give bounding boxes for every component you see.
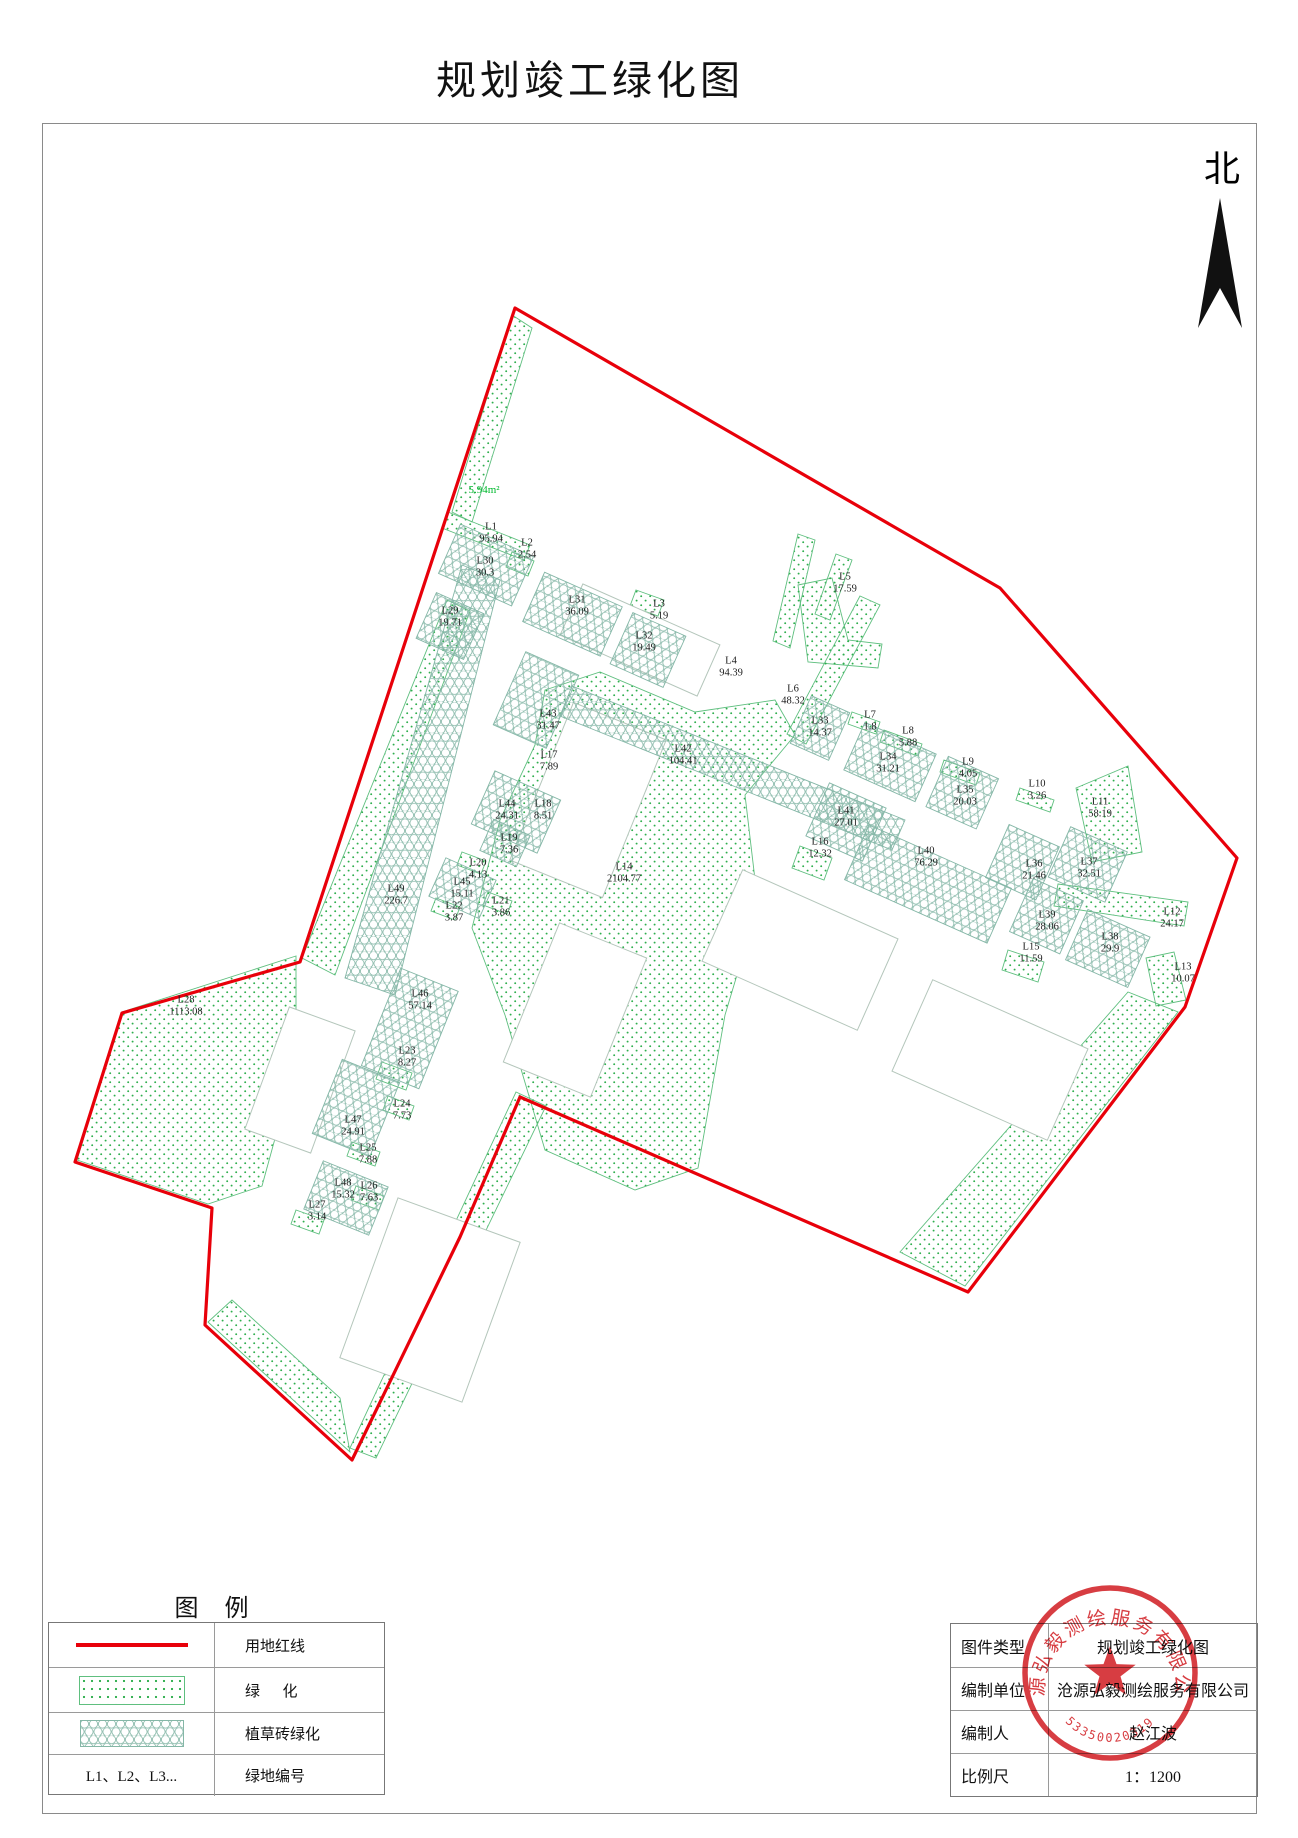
area-label-L17: L177.89 — [540, 749, 558, 773]
area-label-L7: L71.8 — [863, 709, 876, 733]
area-label-L46: L4657.14 — [408, 988, 432, 1012]
legend-redline-swatch — [49, 1623, 215, 1667]
area-label-L38: L3829.9 — [1101, 931, 1119, 955]
area-label-L2: L22.54 — [518, 537, 536, 561]
area-label-L11: L1158.19 — [1088, 796, 1112, 820]
area-label-L28: L281113.08 — [169, 994, 202, 1018]
area-label-L37: L3732.51 — [1077, 856, 1101, 880]
area-label-L33: L3314.37 — [808, 715, 832, 739]
legend-grassbrick-label: 植草砖绿化 — [215, 1712, 384, 1754]
area-label-L43: L4331.47 — [536, 708, 560, 732]
legend-grassbrick-swatch — [49, 1712, 215, 1754]
area-label-L8: L85.88 — [899, 725, 917, 749]
legend-codes-label: 绿地编号 — [215, 1754, 384, 1796]
area-label-L3: L35.19 — [650, 598, 668, 622]
area-label-L29: L2919.71 — [438, 605, 462, 629]
area-label-L21: L213.86 — [492, 895, 510, 919]
area-label-L12: L1224.17 — [1160, 906, 1184, 930]
sheet: 规划竣工绿化图 — [0, 0, 1298, 1838]
area-label-L49: L49226.7 — [384, 883, 408, 907]
area-label-L25: L257.88 — [359, 1142, 377, 1166]
area-label-L22: L223.87 — [445, 900, 463, 924]
north-label: 北 — [1196, 140, 1248, 192]
area-label-L31: L3136.09 — [565, 594, 589, 618]
area-label-L45: L4515.11 — [450, 876, 473, 900]
legend-title: 图 例 — [48, 1588, 385, 1623]
area-label-L30: L3030.3 — [476, 555, 494, 579]
legend-green-label: 绿 化 — [215, 1667, 384, 1712]
site-plan — [0, 0, 1298, 1838]
area-label-L47: L4724.91 — [341, 1114, 365, 1138]
area-label-L32: L3219.49 — [632, 630, 656, 654]
legend-codes-sample: L1、L2、L3... — [49, 1754, 215, 1796]
area-label-L35: L3520.03 — [953, 784, 977, 808]
area-label-L19: L197.36 — [500, 832, 518, 856]
svg-text:53350020319: 53350020319 — [1063, 1714, 1157, 1745]
area-label-L41: L4127.01 — [834, 805, 858, 829]
area-label-L13: L1310.07 — [1171, 961, 1195, 985]
area-label-L34: L3431.21 — [876, 751, 900, 775]
area-label-L14: L142104.77 — [607, 861, 641, 885]
area-label-L26: L267.63 — [360, 1180, 378, 1204]
area-label-L16: L1612.32 — [808, 836, 832, 860]
stamp-star-icon — [1084, 1646, 1135, 1695]
area-label-L40: L4076.29 — [914, 845, 938, 869]
area-label-L6: L648.32 — [781, 683, 805, 707]
area-label-L39: L3928.06 — [1035, 909, 1059, 933]
legend-green-swatch — [49, 1667, 215, 1712]
green-area-note: 5.94m² — [468, 484, 499, 496]
area-label-L44: L4424.31 — [495, 798, 519, 822]
area-label-L4: L494.39 — [719, 655, 743, 679]
north-arrow-icon — [1198, 198, 1242, 328]
area-label-L27: L273.14 — [308, 1199, 326, 1223]
stamp-number-text: 53350020319 — [1063, 1714, 1157, 1745]
company-stamp: 沧源弘毅测绘服务有限公司 53350020319 — [1015, 1578, 1205, 1768]
area-label-L23: L238.27 — [398, 1045, 416, 1069]
area-label-L9: L94.05 — [959, 756, 977, 780]
area-label-L1: L195.94 — [479, 521, 503, 545]
area-label-L24: L247.73 — [393, 1098, 411, 1122]
area-label-L48: L4815.32 — [331, 1177, 355, 1201]
area-label-L15: L1511.59 — [1019, 941, 1042, 965]
area-label-L36: L3621.46 — [1022, 858, 1046, 882]
area-label-L42: L42104.41 — [669, 743, 698, 767]
legend-redline-label: 用地红线 — [215, 1623, 384, 1667]
area-label-L5: L517.59 — [833, 571, 857, 595]
area-label-L10: L103.26 — [1028, 778, 1046, 802]
area-label-L18: L188.51 — [534, 798, 552, 822]
legend-table: 用地红线 绿 化 植草砖绿化 L1、L2、L3... 绿地编号 — [48, 1622, 385, 1795]
